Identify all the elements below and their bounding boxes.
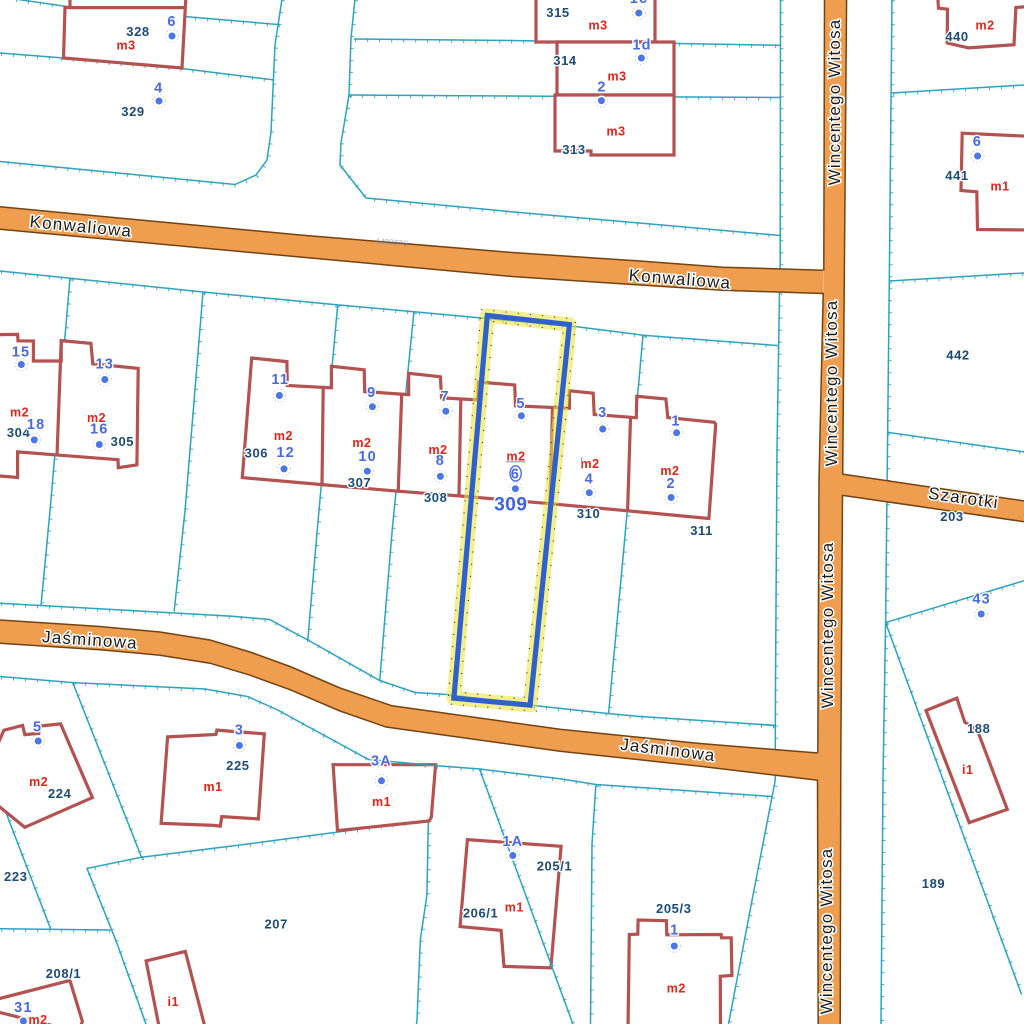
svg-text:3A: 3A [371, 753, 392, 769]
svg-text:31: 31 [14, 1000, 33, 1016]
svg-text:4: 4 [154, 81, 163, 97]
svg-text:18: 18 [27, 417, 46, 433]
svg-text:6: 6 [167, 14, 176, 30]
svg-text:223: 223 [4, 869, 28, 884]
svg-text:9: 9 [367, 385, 376, 401]
svg-text:m3: m3 [116, 39, 135, 53]
svg-text:205/1: 205/1 [537, 859, 573, 874]
svg-text:7: 7 [440, 389, 449, 405]
svg-text:m2: m2 [580, 457, 599, 471]
svg-text:4: 4 [585, 472, 594, 488]
svg-text:8: 8 [436, 453, 445, 469]
svg-text:m2: m2 [29, 775, 48, 789]
svg-text:188: 188 [967, 721, 991, 736]
svg-text:309: 309 [494, 494, 527, 515]
svg-text:1: 1 [670, 923, 679, 939]
svg-text:329: 329 [121, 104, 145, 119]
svg-text:1c: 1c [630, 0, 649, 7]
svg-text:5: 5 [516, 396, 525, 412]
svg-text:m2: m2 [667, 982, 686, 996]
svg-text:i1: i1 [962, 763, 973, 777]
svg-text:m1: m1 [372, 795, 391, 809]
svg-text:Wincentego Witosa: Wincentego Witosa [825, 19, 844, 186]
svg-text:3: 3 [235, 723, 244, 739]
svg-text:208/1: 208/1 [46, 966, 82, 981]
svg-text:224: 224 [48, 786, 72, 801]
svg-text:m1: m1 [990, 180, 1009, 194]
svg-text:i1: i1 [167, 995, 178, 1009]
svg-text:m3: m3 [588, 19, 607, 33]
svg-text:203: 203 [940, 509, 964, 524]
svg-text:311: 311 [690, 523, 713, 538]
svg-text:6: 6 [973, 134, 982, 150]
svg-text:m1: m1 [203, 780, 222, 794]
svg-text:10: 10 [358, 449, 377, 465]
svg-text:310: 310 [577, 506, 601, 521]
svg-text:1d: 1d [632, 38, 651, 54]
svg-text:315: 315 [546, 5, 570, 20]
svg-text:11: 11 [271, 372, 289, 388]
svg-text:305: 305 [111, 434, 135, 449]
svg-text:12: 12 [276, 445, 295, 461]
svg-text:1: 1 [671, 414, 680, 430]
svg-text:328: 328 [126, 24, 150, 39]
svg-text:225: 225 [226, 758, 250, 773]
svg-text:m3: m3 [607, 70, 626, 84]
svg-text:5: 5 [33, 720, 42, 736]
svg-text:441: 441 [945, 168, 969, 183]
svg-text:440: 440 [945, 29, 969, 44]
svg-text:3: 3 [598, 405, 607, 421]
svg-text:313: 313 [562, 142, 586, 157]
svg-text:189: 189 [922, 876, 946, 891]
svg-text:314: 314 [553, 53, 577, 68]
svg-text:205/3: 205/3 [656, 901, 692, 916]
svg-text:206/1: 206/1 [463, 905, 499, 920]
svg-text:15: 15 [12, 345, 31, 361]
svg-text:m3: m3 [606, 125, 625, 139]
svg-text:43: 43 [972, 592, 991, 608]
svg-text:308: 308 [424, 490, 448, 505]
svg-text:442: 442 [946, 348, 970, 363]
svg-text:m2: m2 [274, 429, 293, 443]
svg-text:Wincentego Witosa: Wincentego Witosa [818, 542, 837, 709]
svg-text:2: 2 [666, 476, 675, 492]
svg-text:16: 16 [90, 422, 109, 438]
svg-text:1A: 1A [502, 834, 523, 850]
svg-text:m2: m2 [352, 436, 371, 450]
svg-text:207: 207 [264, 917, 288, 932]
svg-text:2: 2 [597, 79, 606, 95]
svg-text:Wincentego Witosa: Wincentego Witosa [822, 300, 841, 467]
svg-text:306: 306 [245, 446, 269, 461]
svg-text:m2: m2 [975, 19, 994, 33]
svg-text:Wincentego Witosa: Wincentego Witosa [817, 848, 836, 1015]
svg-text:13: 13 [96, 357, 115, 373]
svg-text:m1: m1 [505, 901, 524, 915]
svg-text:307: 307 [348, 475, 372, 490]
